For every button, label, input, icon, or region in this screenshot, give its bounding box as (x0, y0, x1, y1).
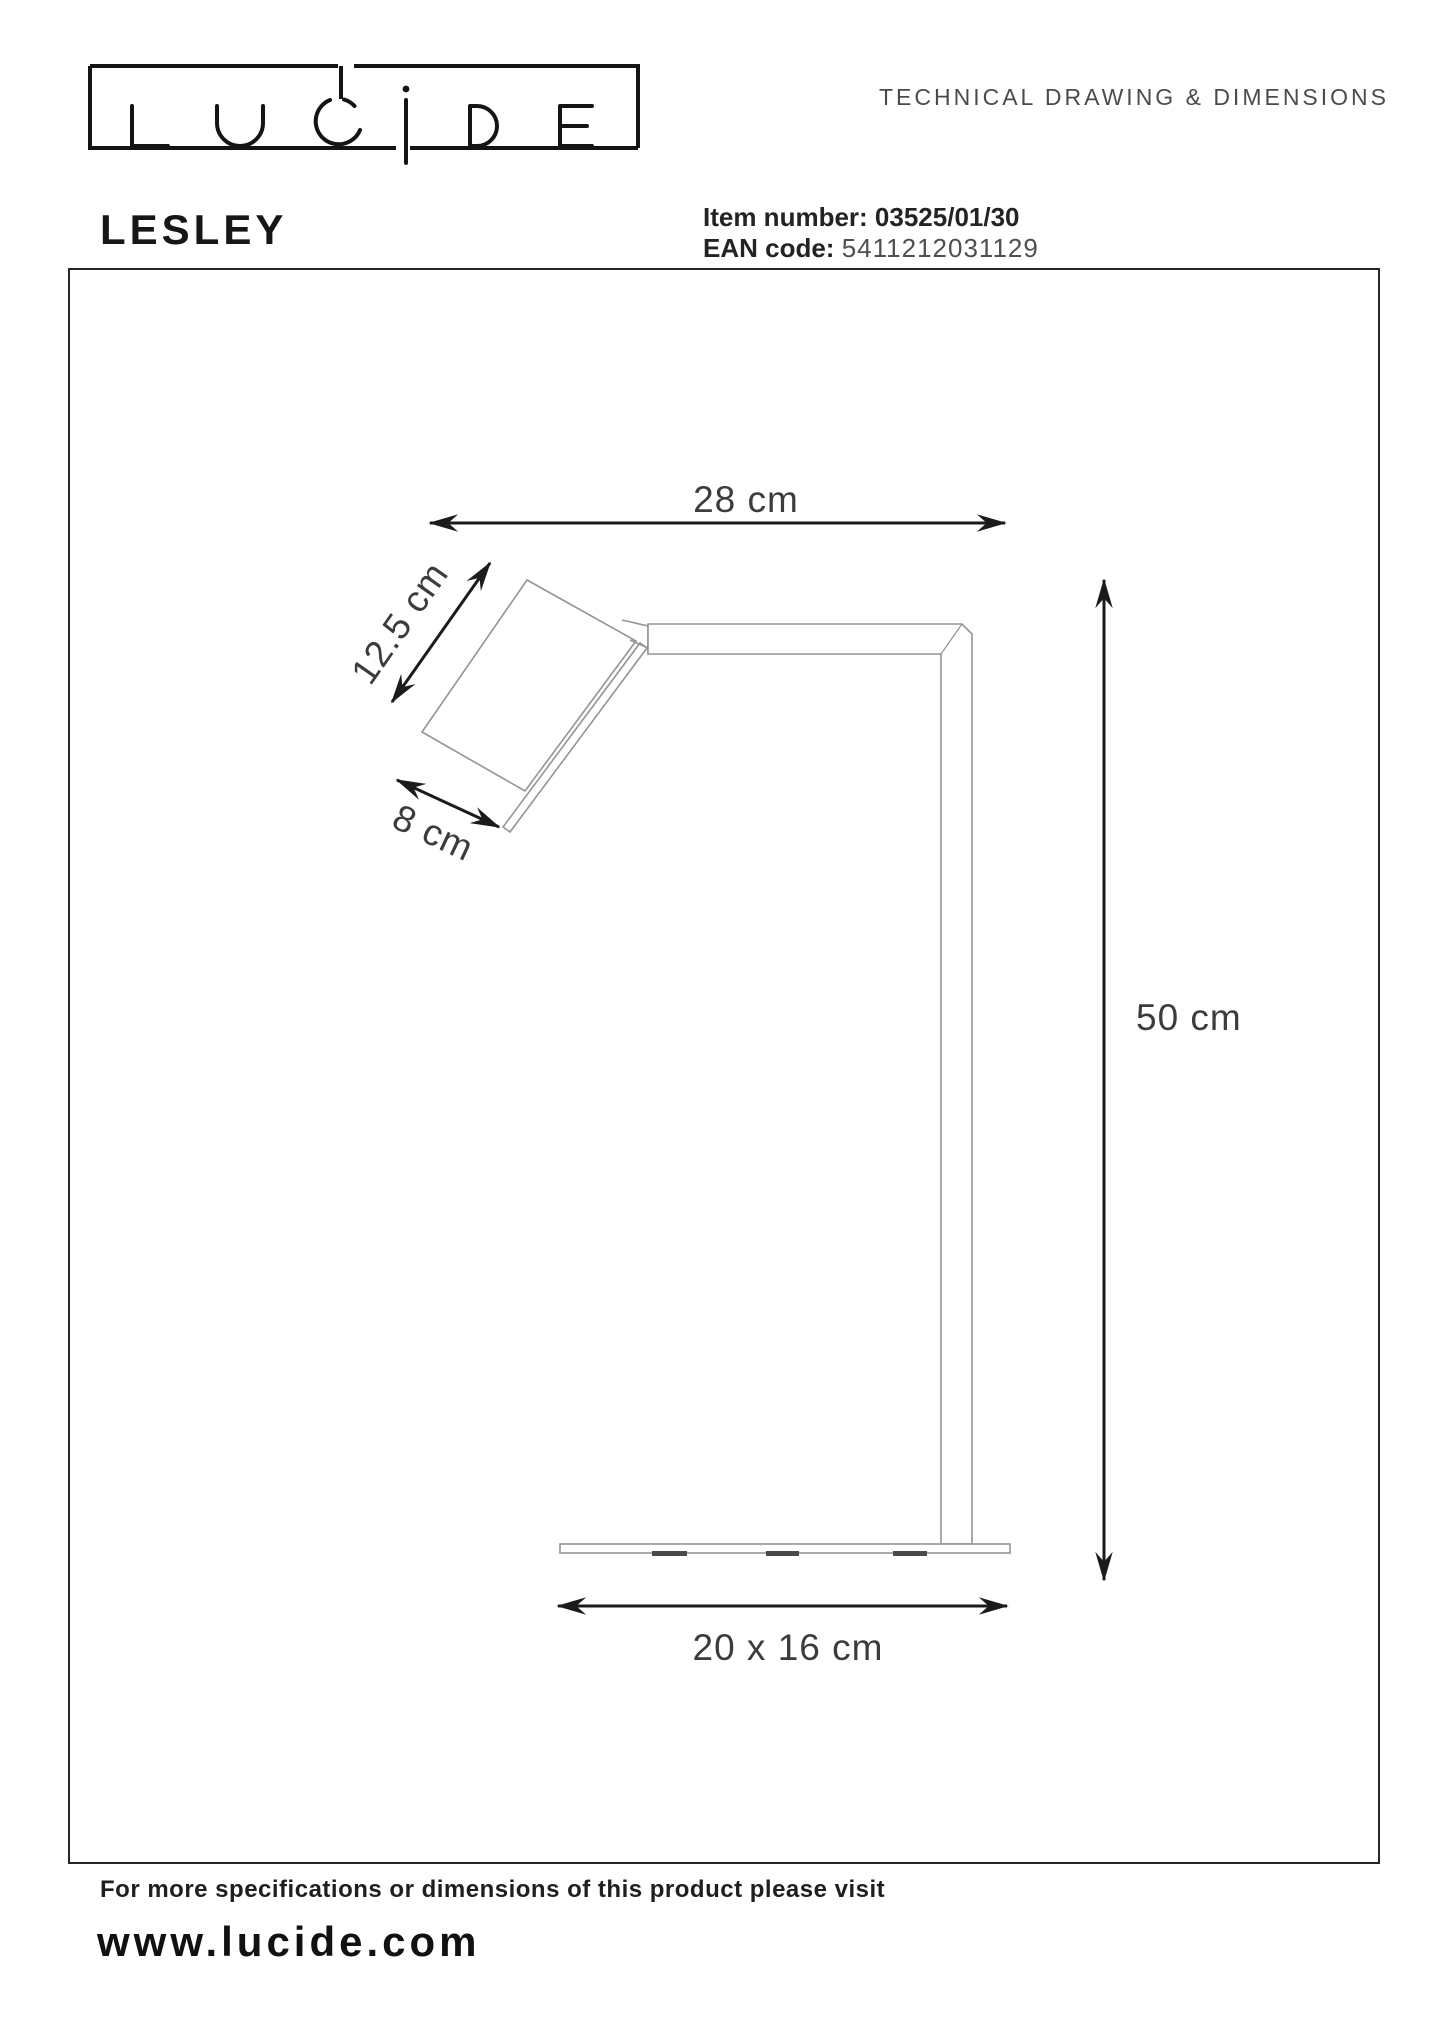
item-number-label: Item number: (703, 202, 868, 232)
lamp-drawing (422, 580, 1010, 1553)
base-foot (766, 1551, 799, 1556)
dim-label-arm-width: 28 cm (693, 479, 799, 520)
base-foot (652, 1551, 687, 1556)
ean-code-row: EAN code: 5411212031129 (703, 233, 1039, 264)
i-dot (403, 86, 410, 93)
dim-label-height: 50 cm (1136, 997, 1242, 1038)
ean-code-value: 5411212031129 (842, 233, 1039, 263)
lamp-bracket-line (622, 620, 648, 626)
product-meta: Item number: 03525/01/30 EAN code: 54112… (703, 202, 1039, 264)
page-title: TECHNICAL DRAWING & DIMENSIONS (879, 84, 1389, 111)
technical-drawing: 28 cm 50 cm 20 x 16 cm 12.5 cm 8 cm (70, 270, 1378, 1862)
dim-label-shade-width: 8 cm (386, 796, 480, 869)
base-foot (893, 1551, 927, 1556)
drawing-frame: 28 cm 50 cm 20 x 16 cm 12.5 cm 8 cm (68, 268, 1380, 1864)
dim-label-shade-length: 12.5 cm (343, 554, 456, 691)
logo-box (90, 66, 638, 148)
footer-note: For more specifications or dimensions of… (100, 1876, 885, 1904)
ean-code-label: EAN code: (703, 233, 834, 263)
lucide-logo (88, 62, 640, 168)
spec-sheet-page: TECHNICAL DRAWING & DIMENSIONS LESLEY It… (0, 0, 1445, 2044)
logo-letters (132, 100, 592, 164)
lamp-arm-pole (648, 624, 972, 1544)
footer-website-url: www.lucide.com (97, 1918, 481, 1966)
product-name: LESLEY (100, 206, 287, 254)
dim-label-base: 20 x 16 cm (693, 1627, 884, 1668)
item-number-value: 03525/01/30 (875, 202, 1020, 232)
item-number-row: Item number: 03525/01/30 (703, 202, 1039, 233)
